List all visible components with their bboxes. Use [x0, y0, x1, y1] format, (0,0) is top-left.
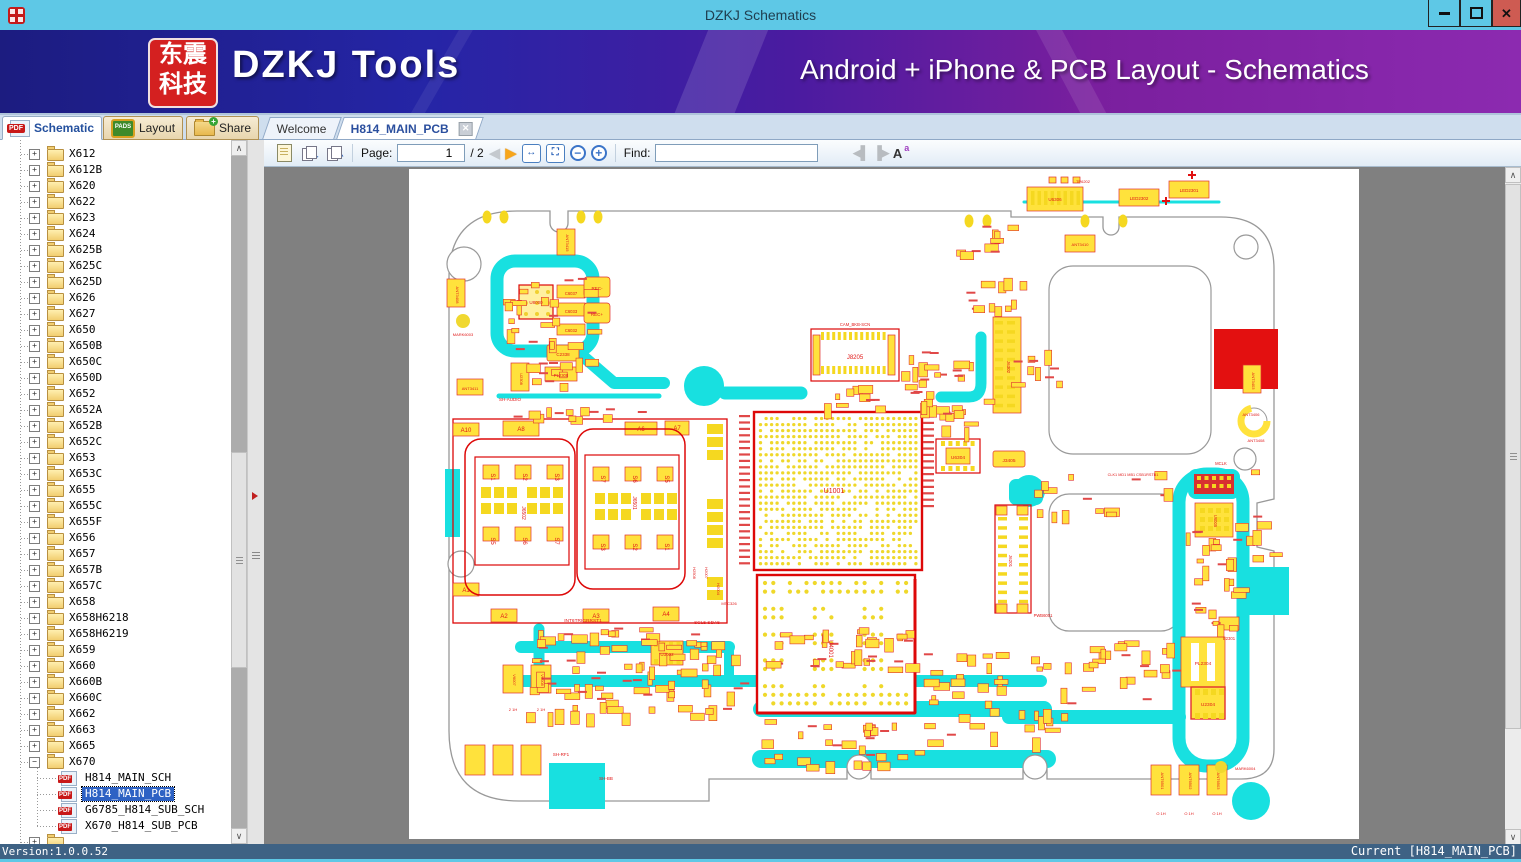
tab-welcome[interactable]: Welcome [262, 117, 341, 139]
folder-icon [47, 709, 64, 721]
previous-page-button[interactable]: ◀ [489, 146, 501, 161]
pcb-label-v6008: V6008 [540, 674, 545, 686]
pcb-label-mtc326: MTC326 [721, 601, 737, 606]
brand-logo-line2: 科技 [150, 70, 216, 100]
tree-folder-row[interactable]: +X665 [0, 738, 231, 754]
folder-icon [47, 453, 64, 465]
pcb-label-c6032: C6032 [565, 328, 578, 333]
tree-expand-icon[interactable]: + [29, 741, 40, 752]
tree-expand-icon[interactable]: − [29, 757, 40, 768]
camera-cutout [1049, 266, 1211, 454]
pcb-label-h2004: H2004 [716, 583, 721, 596]
splitter-grip [252, 552, 260, 561]
tree-item-label[interactable]: X660B [66, 675, 105, 689]
folder-icon [47, 677, 64, 689]
tree-expand-icon[interactable]: + [29, 485, 40, 496]
pcb-drawing: U1001 U4001 J8205 CAM_BKB-SCN J6302 J620… [409, 169, 1359, 839]
folder-icon [47, 581, 64, 593]
tree-expand-icon[interactable]: + [29, 661, 40, 672]
pcb-label-c6037: C6037 [565, 291, 578, 296]
tree-file-row[interactable]: PDFG6785_H814_SUB_SCH [0, 802, 231, 818]
tree-folder-row[interactable]: +X652C [0, 434, 231, 450]
tree-item-label[interactable]: X653 [66, 451, 99, 465]
folder-icon [47, 837, 64, 844]
pdf-file-icon: PDF [61, 819, 77, 834]
sidebar: +X612+X612B+X620+X622+X623+X624+X625B+X6… [0, 140, 264, 844]
sim-pad-label: S6 [521, 537, 527, 545]
tree-expand-icon[interactable]: + [29, 165, 40, 176]
pcb-label-sh-audio: SH-AUDIO [499, 397, 522, 402]
folder-icon [47, 517, 64, 529]
tree-item-label[interactable]: X650D [66, 371, 105, 385]
tree-expand-icon[interactable]: + [29, 197, 40, 208]
sidebar-splitter[interactable] [247, 140, 264, 844]
folder-icon [47, 501, 64, 513]
folder-icon [47, 533, 64, 545]
pcb-label-j6302: J6302 [1006, 361, 1011, 374]
pcb-label-ant3408-arc: ANT3408 [1248, 438, 1266, 443]
pcb-label-led2301: LED2301 [1180, 188, 1199, 193]
tree-item-label[interactable]: X623 [66, 211, 99, 225]
pcb-label-2-1h-b: 2 1H [537, 707, 546, 712]
document-viewer[interactable]: U1001 U4001 J8205 CAM_BKB-SCN J6302 J620… [264, 167, 1521, 844]
folder-icon [47, 181, 64, 193]
sim-edge-pad-label: A2 [500, 614, 508, 620]
tree-item-label[interactable]: X662 [66, 707, 99, 721]
tree-folder-row[interactable]: +X650B [0, 338, 231, 354]
tree-item-label[interactable]: X658 [66, 595, 99, 609]
folder-icon [47, 597, 64, 609]
tree-expand-icon[interactable]: + [29, 645, 40, 656]
tree-item-label[interactable]: X625C [66, 259, 105, 273]
tree-item-label[interactable]: X657C [66, 579, 105, 593]
folder-icon [47, 421, 64, 433]
maximize-button[interactable] [1460, 0, 1492, 27]
viewer-scroll-up-icon[interactable]: ∧ [1505, 167, 1521, 183]
current-document-label: Current [H814_MAIN_PCB] [1351, 844, 1517, 859]
import-page-icon: ↶ [327, 146, 342, 161]
tree-expand-icon[interactable]: + [29, 309, 40, 320]
pdf-file-icon: PDF [61, 787, 77, 802]
tree-folder-row[interactable]: + [0, 834, 231, 844]
tree-item-label[interactable]: X650B [66, 339, 105, 353]
tree-item-label[interactable]: X625D [66, 275, 105, 289]
tree-expand-icon[interactable]: + [29, 373, 40, 384]
tree-item-label[interactable]: X652A [66, 403, 105, 417]
sim-pad-label: S7 [553, 537, 559, 545]
pcb-label-pl2304: PL2304 [1195, 661, 1212, 667]
tree-item-label[interactable]: X656 [66, 531, 99, 545]
tree-expand-icon[interactable]: + [29, 453, 40, 464]
scroll-down-icon[interactable]: ∨ [231, 828, 247, 844]
tree-expand-icon[interactable]: + [29, 597, 40, 608]
tree-item-label[interactable]: X620 [66, 179, 99, 193]
tree-item-label[interactable]: X626 [66, 291, 99, 305]
folder-icon [47, 245, 64, 257]
tab-welcome-label: Welcome [267, 122, 337, 136]
tree-folder-row[interactable]: +X622 [0, 194, 231, 210]
maximize-icon [1470, 7, 1483, 19]
tree-item-label[interactable]: X660 [66, 659, 99, 673]
tree-expand-icon[interactable]: + [29, 357, 40, 368]
folder-icon [47, 293, 64, 305]
sim-socket-ref: J6502 [520, 506, 526, 520]
find-previous-icon[interactable]: ◀▌ [852, 145, 867, 161]
tab-share[interactable]: + Share [186, 116, 259, 140]
tree-item-label[interactable]: X655C [66, 499, 105, 513]
tree-expand-icon[interactable]: + [29, 261, 40, 272]
tree-file-row[interactable]: PDFH814_MAIN_PCB [0, 786, 231, 802]
sim-edge-pad-label: A7 [673, 426, 681, 432]
tree-expand-icon[interactable]: + [29, 421, 40, 432]
close-button[interactable]: ✕ [1492, 0, 1521, 27]
tree-expand-icon[interactable]: + [29, 341, 40, 352]
tree-folder-row[interactable]: +X612 [0, 146, 231, 162]
folder-tree[interactable]: +X612+X612B+X620+X622+X623+X624+X625B+X6… [0, 140, 231, 844]
pcb-label-b2301: B2301 [1223, 636, 1236, 641]
title-bar: DZKJ Schematics ✕ [0, 0, 1521, 30]
pcb-label-u2308: U2308 [519, 373, 524, 386]
scroll-up-icon[interactable]: ∧ [231, 140, 247, 156]
tree-folder-row[interactable]: +X653C [0, 466, 231, 482]
pcb-label-u3002: U3002 [660, 652, 674, 657]
tree-expand-icon[interactable]: + [29, 549, 40, 560]
pcb-label-ant3410: ANT3410 [1072, 242, 1090, 247]
tab-schematic-label: Schematic [34, 121, 94, 135]
pcb-label-ant3408-left: ANT3408 [455, 287, 460, 305]
pcb-label-o1h-c: O 1H [1212, 811, 1221, 816]
tree-item-label[interactable]: X657B [66, 563, 105, 577]
tree-expand-icon[interactable]: + [29, 533, 40, 544]
tree-folder-row[interactable]: +X625C [0, 258, 231, 274]
tree-item-label[interactable]: X652B [66, 419, 105, 433]
tree-folder-row[interactable]: +X612B [0, 162, 231, 178]
tab-schematic[interactable]: PDF Schematic [2, 116, 102, 140]
pcb-label-2-1h-a: 2 1H [509, 707, 518, 712]
tree-folder-row[interactable]: +X656 [0, 530, 231, 546]
tree-item-label[interactable]: X650C [66, 355, 105, 369]
screw-hole [448, 551, 474, 577]
pcb-label-ant6503: ANT6503 [1216, 773, 1221, 791]
tree-folder-row[interactable]: +X660C [0, 690, 231, 706]
pcb-label-sh-bb: SH-BB [599, 776, 613, 781]
pcb-label-j3405: J3405 [1002, 458, 1015, 464]
minimize-button[interactable] [1428, 0, 1460, 27]
tree-folder-row[interactable]: +X626 [0, 290, 231, 306]
tree-expand-icon[interactable]: + [29, 677, 40, 688]
page-number-input[interactable] [397, 144, 465, 162]
tree-folder-row[interactable]: +X627 [0, 306, 231, 322]
status-bar: Version:1.0.0.52 Current [H814_MAIN_PCB] [0, 844, 1521, 859]
pcb-page[interactable]: U1001 U4001 J8205 CAM_BKB-SCN J6302 J620… [409, 169, 1359, 839]
pcb-label-rec-minus: REC- [592, 286, 604, 291]
folder-icon [47, 661, 64, 673]
tree-expand-icon[interactable]: + [29, 437, 40, 448]
tree-file-row[interactable]: PDFH814_MAIN_SCH [0, 770, 231, 786]
close-icon: ✕ [1501, 7, 1512, 20]
brand-logo: 东震 科技 [148, 38, 218, 108]
tree-expand-icon[interactable]: + [29, 565, 40, 576]
next-page-button[interactable]: ▶ [505, 146, 517, 161]
tree-item-label[interactable]: X652 [66, 387, 99, 401]
tree-expand-icon[interactable]: + [29, 693, 40, 704]
folder-icon [47, 149, 64, 161]
tree-expand-icon[interactable]: + [29, 517, 40, 528]
pcb-label-u4001: U4001 [827, 640, 833, 658]
zoom-out-button[interactable]: − [570, 145, 586, 161]
pcb-label-pwb6001: PWB6001 [1034, 613, 1054, 618]
splitter-collapse-icon[interactable] [252, 492, 258, 500]
folder-icon [47, 549, 64, 561]
tree-item-label[interactable]: X652C [66, 435, 105, 449]
tree-expand-icon[interactable]: + [29, 389, 40, 400]
page-label: Page: [361, 146, 392, 160]
export-page-button[interactable]: ↷ [299, 144, 319, 163]
tree-folder-row[interactable]: +X658H6219 [0, 626, 231, 642]
pcb-label-ant6502: ANT6502 [1188, 773, 1193, 791]
tree-expand-icon[interactable]: + [29, 725, 40, 736]
zoom-in-button[interactable]: + [591, 145, 607, 161]
tree-folder-row[interactable]: +X650 [0, 322, 231, 338]
sim-pad-label: S5 [489, 537, 495, 545]
tree-folder-row[interactable]: +X655C [0, 498, 231, 514]
folder-icon [47, 741, 64, 753]
folder-icon [47, 405, 64, 417]
folder-icon [47, 229, 64, 241]
tree-folder-row[interactable]: +X658 [0, 594, 231, 610]
folder-icon [47, 565, 64, 577]
export-page-icon: ↷ [302, 146, 317, 161]
tree-expand-icon[interactable]: + [29, 581, 40, 592]
tree-folder-row[interactable]: +X662 [0, 706, 231, 722]
sim-edge-pad-label: A1 [462, 588, 470, 594]
pcb-label-ant6501: ANT6501 [1160, 773, 1165, 791]
tree-expand-icon[interactable]: + [29, 501, 40, 512]
pcb-label-j8205: J8205 [847, 355, 864, 361]
pcb-label-mark6004: MARK6004 [1235, 766, 1256, 771]
tree-item-label[interactable]: X612 [66, 147, 99, 161]
match-case-button[interactable]: Aa [893, 146, 909, 161]
folder-icon [47, 325, 64, 337]
tree-item-label[interactable]: X670 [66, 755, 99, 769]
banner-subtitle: Android + iPhone & PCB Layout - Schemati… [800, 54, 1369, 86]
folder-icon [47, 213, 64, 225]
folder-icon [47, 645, 64, 657]
find-next-icon[interactable]: ▐▶ [873, 145, 888, 161]
tree-folder-row[interactable]: +X657C [0, 578, 231, 594]
tree-folder-row[interactable]: +X658H6218 [0, 610, 231, 626]
tree-item-label[interactable]: X670_H814_SUB_PCB [82, 819, 201, 833]
tree-item-label[interactable]: H814_MAIN_SCH [82, 771, 174, 785]
tree-expand-icon[interactable]: + [29, 213, 40, 224]
tree-expand-icon[interactable]: + [29, 613, 40, 624]
pdf-file-icon: PDF [61, 803, 77, 818]
folder-icon [47, 485, 64, 497]
pcb-label-tp6202: TP6202 [1076, 179, 1091, 184]
tree-folder-row[interactable]: +X652B [0, 418, 231, 434]
copy-text-button[interactable] [274, 144, 294, 163]
tree-expand-icon[interactable]: + [29, 181, 40, 192]
folder-icon [47, 373, 64, 385]
app-banner: 东震 科技 DZKJ Tools Android + iPhone & PCB … [0, 30, 1521, 115]
pcb-label-u1001: U1001 [824, 488, 845, 495]
pcb-label-u6304: U6304 [951, 455, 965, 461]
pcb-label-ant3415: ANT3415 [565, 235, 570, 253]
tree-item-label[interactable]: X655 [66, 483, 99, 497]
tree-file-row[interactable]: PDFX670_H814_SUB_PCB [0, 818, 231, 834]
sidebar-scrollbar[interactable]: ∧ ∨ [231, 140, 247, 844]
sim-pad-label: S1 [489, 473, 495, 481]
folder-icon [47, 197, 64, 209]
sidebar-scrollbar-thumb[interactable] [231, 452, 247, 668]
pcb-label-ant3406: ANT3406 [1243, 412, 1261, 417]
tree-folder-row[interactable]: +X625B [0, 242, 231, 258]
folder-icon [47, 725, 64, 737]
tree-expand-icon[interactable]: + [29, 149, 40, 160]
tab-layout-label: Layout [139, 121, 175, 135]
tree-expand-icon[interactable]: + [29, 293, 40, 304]
screw-hole [447, 247, 481, 281]
pcb-label-mclk: MCLK [1215, 461, 1227, 466]
sim-pad-label: S3 [553, 473, 559, 481]
tree-folder-row[interactable]: +X650C [0, 354, 231, 370]
window-title: DZKJ Schematics [0, 7, 1521, 23]
banner-title: DZKJ Tools [232, 44, 460, 87]
pcb-label-led2302: LED2302 [1130, 196, 1149, 201]
tree-item-label[interactable]: X624 [66, 227, 99, 241]
pcb-label-j6201: J6201 [1008, 555, 1013, 568]
tab-h814-main-pcb[interactable]: H814_MAIN_PCB ✕ [336, 117, 484, 139]
pcb-label-o1h-a: O 1H [1156, 811, 1165, 816]
pcb-label-h2508: H2508 [692, 567, 697, 580]
tree-expand-icon[interactable]: + [29, 277, 40, 288]
tree-folder-row[interactable]: +X660 [0, 658, 231, 674]
sim-pad-label: S3 [599, 543, 605, 551]
viewer-scrollbar-thumb[interactable] [1505, 184, 1521, 729]
tree-folder-row[interactable]: −X670 [0, 754, 231, 770]
tree-item-label[interactable]: H814_MAIN_PCB [82, 787, 174, 801]
tree-folder-row[interactable]: +X659 [0, 642, 231, 658]
tree-item-label[interactable]: X653C [66, 467, 105, 481]
pcb-label-u6005: U6005 [1213, 515, 1218, 528]
import-page-button[interactable]: ↶ [324, 144, 344, 163]
tree-folder-row[interactable]: +X620 [0, 178, 231, 194]
tree-expand-icon[interactable]: + [29, 709, 40, 720]
tree-expand-icon[interactable]: + [29, 469, 40, 480]
tree-item-label[interactable]: G6785_H814_SUB_SCH [82, 803, 207, 817]
tree-item-label[interactable]: X657 [66, 547, 99, 561]
tab-layout[interactable]: PADS Layout [103, 116, 183, 140]
tree-folder-row[interactable]: +X625D [0, 274, 231, 290]
pdf-file-icon: PDF [61, 771, 77, 786]
folder-icon [47, 757, 64, 769]
pcb-label-c6033: C6033 [565, 309, 578, 314]
tree-item-label[interactable]: X665 [66, 739, 99, 753]
tree-folder-row[interactable]: +X653 [0, 450, 231, 466]
pdf-toolbar: ↷ ↶ Page: / 2 ◀ ▶ ↔ ⛶ − + Find: ◀▌ ▐▶ Aa [264, 140, 1521, 167]
find-input[interactable] [655, 144, 818, 162]
tree-expand-icon[interactable]: + [29, 629, 40, 640]
folder-icon [47, 613, 64, 625]
tree-expand-icon[interactable]: + [29, 405, 40, 416]
pdf-icon: PDF [10, 120, 30, 137]
tree-item-label[interactable]: X659 [66, 643, 99, 657]
tree-item-label[interactable]: X650 [66, 323, 99, 337]
tree-item-label[interactable]: X625B [66, 243, 105, 257]
sim-pad-label: S5 [663, 475, 669, 483]
sim-pad-label: S2 [631, 543, 637, 551]
sim-edge-pad-label: A10 [461, 428, 472, 434]
folder-icon [47, 469, 64, 481]
folder-icon [47, 693, 64, 705]
screw-hole [1234, 235, 1258, 259]
tree-item-label[interactable]: X658H6219 [66, 627, 132, 641]
minimize-icon [1439, 12, 1450, 15]
tree-folder-row[interactable]: +X660B [0, 674, 231, 690]
tree-expand-icon[interactable]: + [29, 325, 40, 336]
tree-item-label[interactable]: X612B [66, 163, 105, 177]
tree-item-label[interactable]: X660C [66, 691, 105, 705]
pcb-label-mark6003: MARK6003 [453, 332, 474, 337]
tree-item-label[interactable]: X655F [66, 515, 105, 529]
tree-item-label[interactable]: X658H6218 [66, 611, 132, 625]
tree-expand-icon[interactable]: + [29, 837, 40, 844]
tree-item-label[interactable]: X663 [66, 723, 99, 737]
pcb-label-c2338: C2338 [556, 352, 570, 357]
find-label: Find: [624, 146, 651, 160]
sim-edge-pad-label: A6 [637, 427, 645, 433]
viewer-scroll-down-icon[interactable]: ∨ [1505, 829, 1521, 844]
tree-folder-row[interactable]: +X663 [0, 722, 231, 738]
tree-folder-row[interactable]: +X652 [0, 386, 231, 402]
tree-folder-row[interactable]: +X623 [0, 210, 231, 226]
fit-width-button[interactable]: ↔ [522, 144, 541, 163]
tree-folder-row[interactable]: +X650D [0, 370, 231, 386]
fit-page-button[interactable]: ⛶ [546, 144, 565, 163]
pcb-label-clk1: CLK1 MD1 MB1 CSB1RSTB1 [1108, 473, 1159, 477]
share-folder-icon: + [194, 121, 215, 136]
tree-folder-row[interactable]: +X657 [0, 546, 231, 562]
sim-edge-pad-label: A4 [662, 612, 670, 618]
tree-item-label[interactable]: X627 [66, 307, 99, 321]
viewer-scrollbar[interactable]: ∧ ∨ [1505, 167, 1521, 844]
tree-folder-row[interactable]: +X657B [0, 562, 231, 578]
folder-icon [47, 437, 64, 449]
pcb-label-sh-rf1: SH-RF1 [553, 752, 570, 757]
tree-expand-icon[interactable]: + [29, 229, 40, 240]
tree-folder-row[interactable]: +X652A [0, 402, 231, 418]
version-label: Version:1.0.0.52 [2, 844, 108, 859]
tab-close-icon[interactable]: ✕ [459, 122, 473, 136]
sim-edge-pad-label: A3 [592, 614, 600, 620]
folder-icon [47, 389, 64, 401]
pcb-label-rec-plus: REC+ [591, 312, 604, 317]
tree-folder-row[interactable]: +X655 [0, 482, 231, 498]
tree-folder-row[interactable]: +X655F [0, 514, 231, 530]
screw-hole [1234, 448, 1256, 470]
tab-share-label: Share [219, 121, 251, 135]
edge-notch [1023, 755, 1047, 779]
tab-bar: PDF Schematic PADS Layout + Share Welcom… [0, 115, 1521, 140]
pcb-label-u8000: U8000 [529, 300, 543, 305]
tree-folder-row[interactable]: +X624 [0, 226, 231, 242]
tree-expand-icon[interactable]: + [29, 245, 40, 256]
tree-item-label[interactable]: X622 [66, 195, 99, 209]
folder-icon [47, 261, 64, 273]
pads-icon: PADS [111, 119, 135, 138]
folder-icon [47, 341, 64, 353]
pcb-label-o1h-b: O 1H [1184, 811, 1193, 816]
